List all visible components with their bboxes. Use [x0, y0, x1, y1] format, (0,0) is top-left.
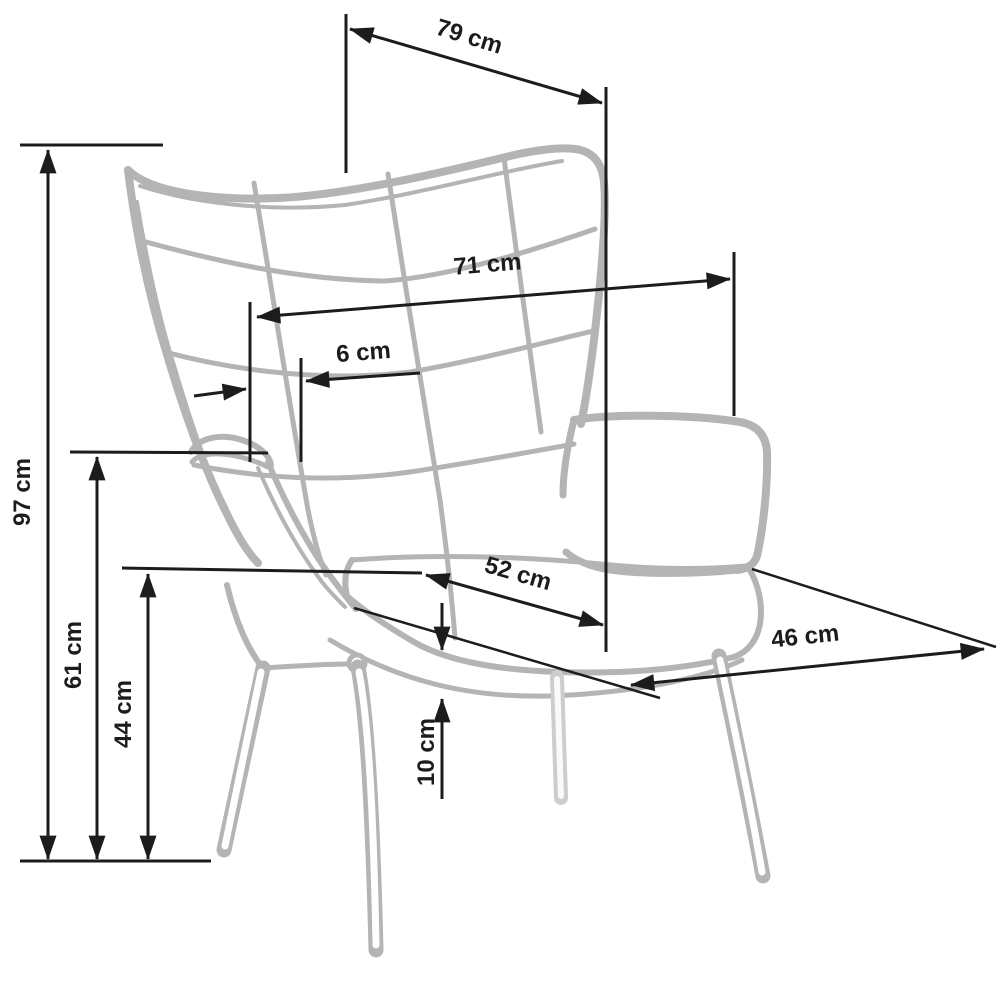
dim-seat-height-ext-top [122, 568, 422, 573]
diagram-canvas: 79 cm 71 cm 6 cm 97 cm 61 cm 44 cm 52 cm… [0, 0, 1000, 1000]
dim-wing-offset-arrow-left [194, 389, 246, 396]
backrest-top-piping [140, 161, 562, 208]
seat-cushion-rear-seam [352, 557, 746, 569]
label-total-height: 97 cm [9, 458, 36, 526]
label-wing-offset: 6 cm [335, 337, 392, 368]
rear-left-leg-core [557, 679, 561, 796]
left-armrest-front-edge-inner [258, 468, 345, 607]
seat-cushion-right-bulge [734, 567, 761, 657]
dimension-lines [20, 14, 996, 861]
label-armrest-height: 61 cm [60, 621, 87, 689]
dim-armrest-height-ext-top [70, 452, 268, 453]
armchair-dimension-diagram: 79 cm 71 cm 6 cm 97 cm 61 cm 44 cm 52 cm… [0, 0, 1000, 1000]
label-seat-width: 46 cm [770, 620, 841, 654]
quilt-seam-horizontal-1 [146, 229, 595, 281]
label-seat-height: 44 cm [110, 680, 137, 748]
label-total-depth: 79 cm [433, 14, 506, 60]
seat-side-panel-edge [227, 585, 263, 668]
dim-seat-width-ext-left [354, 608, 660, 698]
rear-right-leg-core [720, 660, 762, 872]
armchair-sketch [128, 148, 767, 950]
seat-frame-front-bar [263, 664, 350, 668]
legs [224, 656, 763, 950]
dim-total-width-line [257, 279, 730, 317]
front-left-leg-core [225, 672, 261, 846]
label-cushion-thickness: 10 cm [413, 718, 440, 786]
label-total-width: 71 cm [452, 248, 522, 280]
right-armrest-left-edge [563, 420, 574, 495]
right-armrest-outer [574, 416, 767, 570]
quilt-seam-vertical-2 [388, 174, 455, 638]
